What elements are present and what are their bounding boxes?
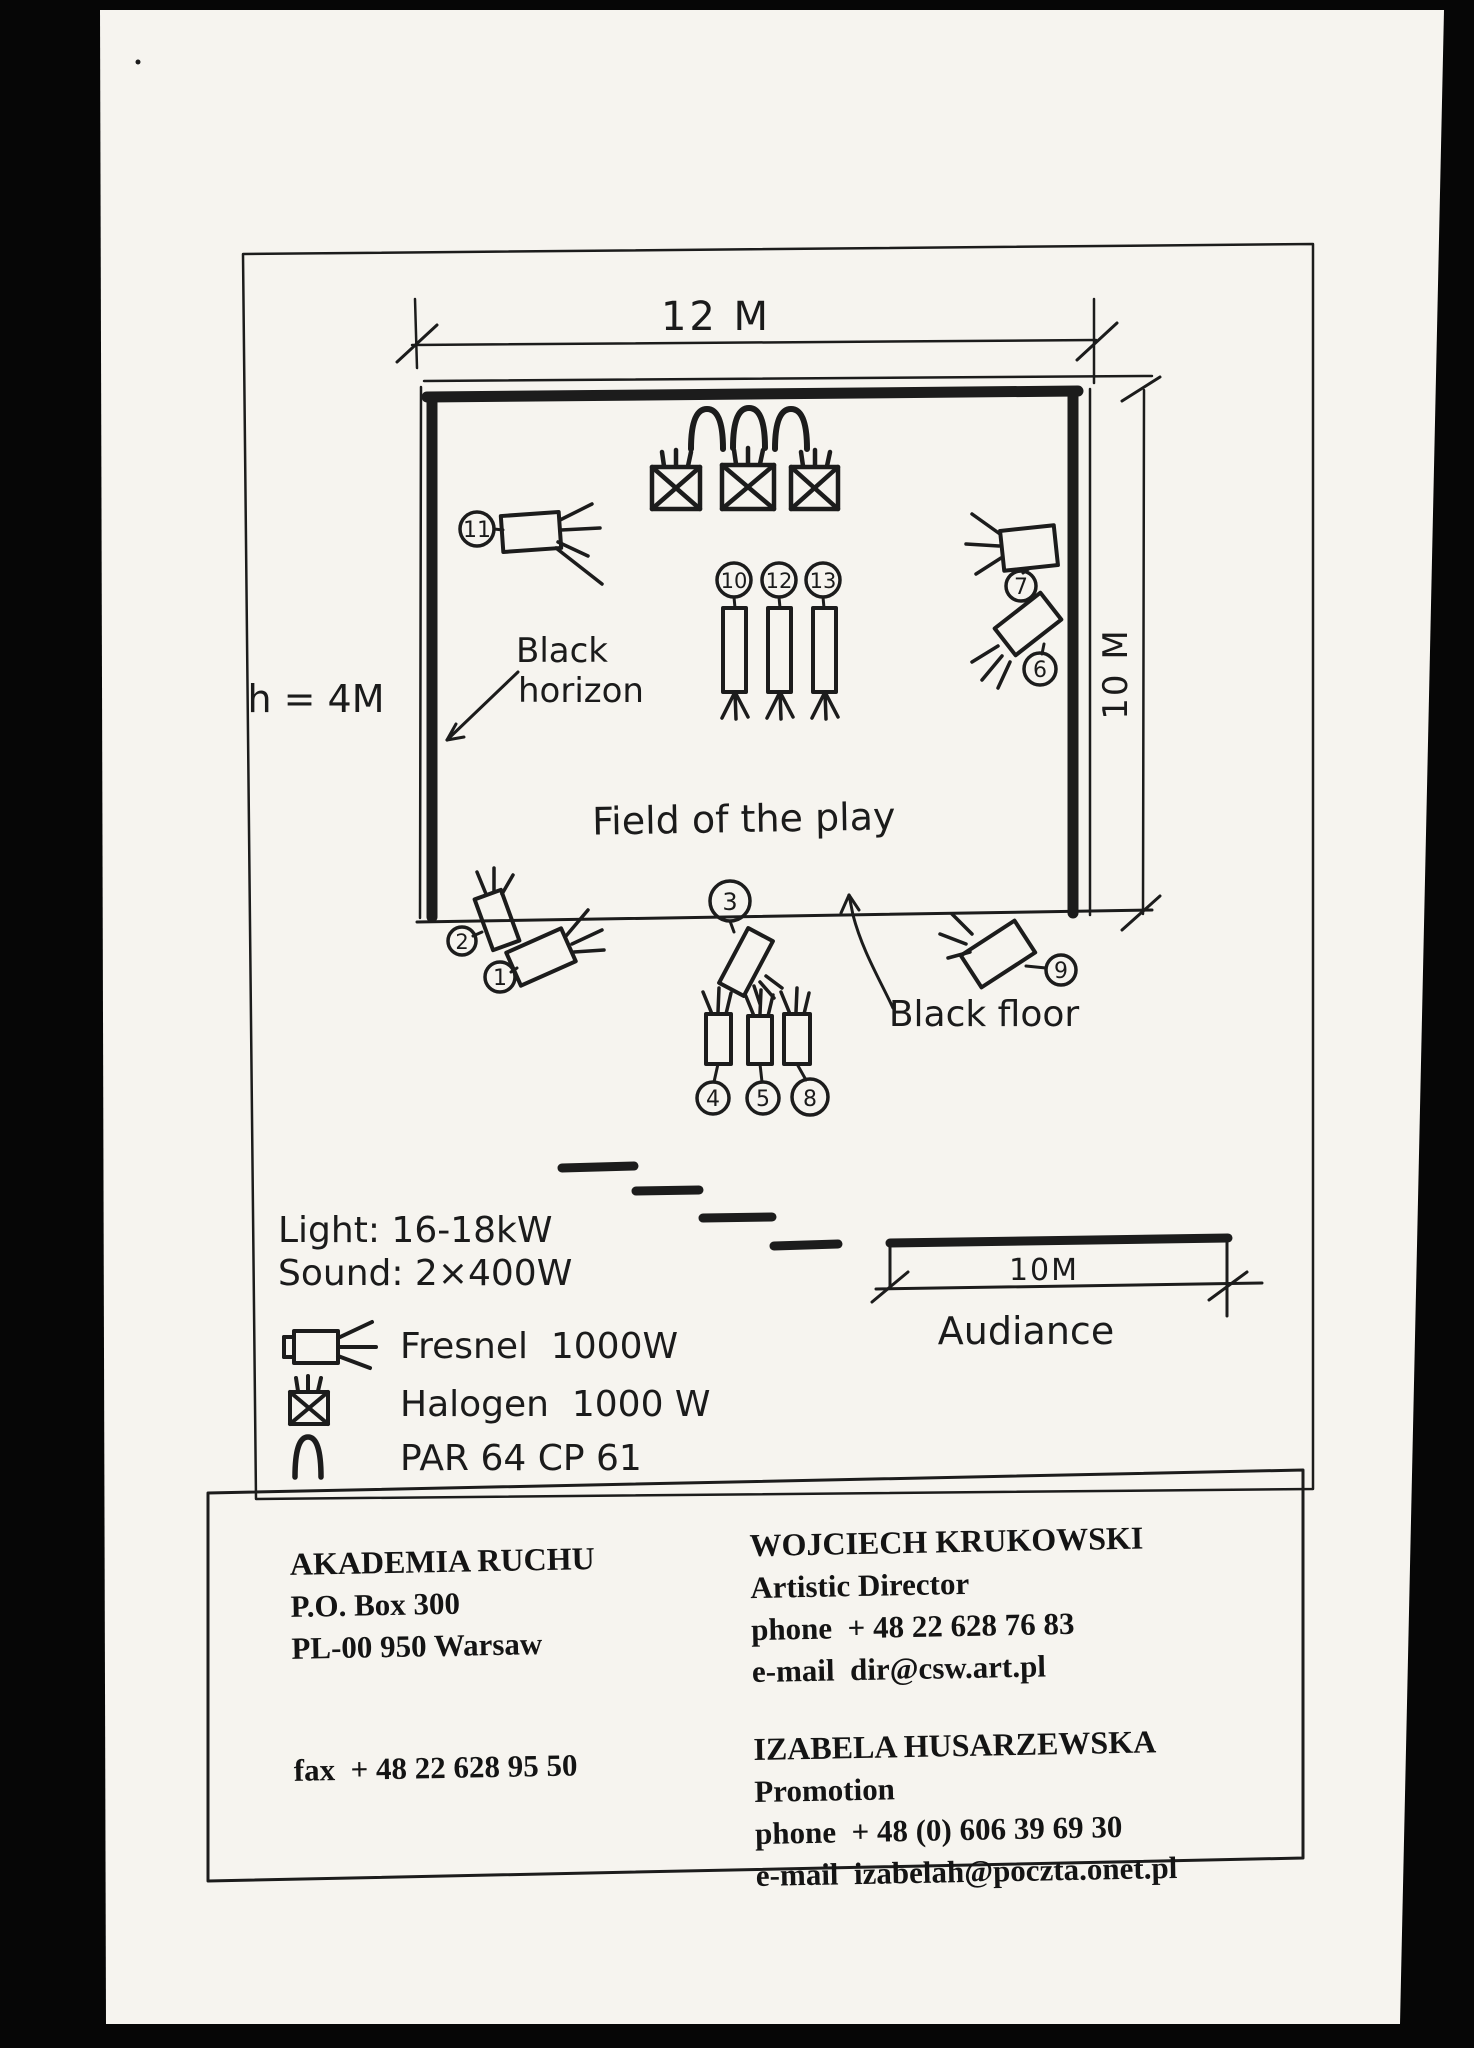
legend-light: Light: 16-18kW (278, 1210, 552, 1251)
fixture-number: 3 (722, 888, 737, 916)
fixture-number: 13 (810, 569, 837, 593)
audience-dimension-label: 10M (1009, 1253, 1079, 1288)
fixture-number: 5 (756, 1087, 770, 1112)
fixture-number: 6 (1033, 658, 1047, 683)
black-horizon-word1: Black (516, 631, 608, 671)
promotion-title: Promotion (754, 1771, 895, 1809)
black-horizon-word2: horizon (518, 671, 644, 711)
fixture-number: 12 (766, 569, 793, 593)
fixture-number: 1 (493, 966, 507, 991)
legend-sound: Sound: 2×400W (278, 1253, 572, 1294)
fixture-number: 9 (1054, 959, 1068, 984)
legend-halogen: Halogen 1000 W (400, 1384, 711, 1425)
org-address2: PL-00 950 Warsaw (291, 1626, 543, 1666)
director-email: e-mail dir@csw.art.pl (752, 1648, 1047, 1689)
ink-speck (136, 60, 141, 65)
director-name: WOJCIECH KRUKOWSKI (749, 1520, 1143, 1564)
width-dimension-label: 12 M (661, 294, 771, 340)
legend-par: PAR 64 CP 61 (400, 1438, 642, 1479)
fixture-number: 7 (1014, 575, 1028, 600)
black-horizon-back-wall (427, 391, 1078, 397)
stage-label: Field of the play (592, 794, 896, 843)
legend-fresnel: Fresnel 1000W (400, 1326, 678, 1367)
fixture-number: 11 (463, 518, 491, 543)
org-address1: P.O. Box 300 (290, 1586, 460, 1624)
black-floor-text: Black floor (889, 994, 1080, 1035)
director-phone: phone + 48 22 628 76 83 (751, 1606, 1075, 1647)
fixture-number: 10 (721, 569, 748, 593)
audience-label: Audiance (938, 1309, 1114, 1353)
fixture-number: 2 (455, 930, 468, 954)
audience-box-top (890, 1238, 1228, 1243)
promotion-phone: phone + 48 (0) 606 39 69 30 (755, 1809, 1123, 1851)
org-fax: fax + 48 22 628 95 50 (293, 1747, 577, 1787)
stage-plan-scan: 12 M 10 M h = 4M Black horizon Field of … (0, 0, 1474, 2048)
fixture-number: 4 (706, 1087, 720, 1112)
fixture-number: 8 (803, 1087, 817, 1112)
org-name: AKADEMIA RUCHU (289, 1540, 595, 1582)
director-title: Artistic Director (750, 1566, 970, 1605)
height-dimension-label: 10 M (1096, 628, 1136, 719)
ceiling-height-label: h = 4M (247, 677, 384, 721)
scanned-page: 12 M 10 M h = 4M Black horizon Field of … (0, 0, 1474, 2048)
